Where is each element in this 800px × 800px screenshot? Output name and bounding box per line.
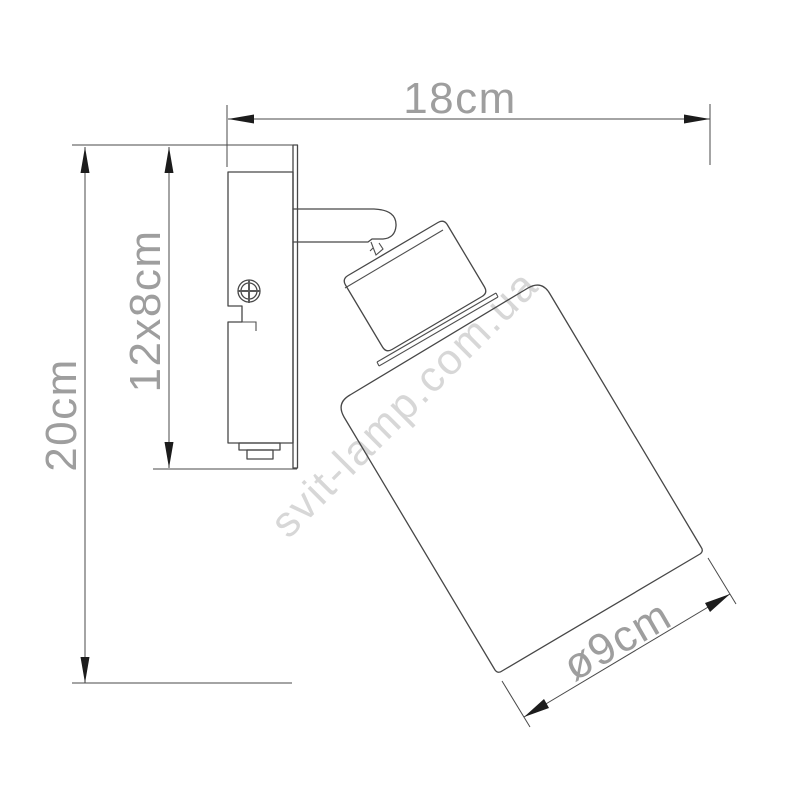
backplate-arrow-top — [165, 147, 174, 173]
backplate-dimension-label: 12x8cm — [121, 229, 170, 392]
height-extension-lines — [72, 145, 297, 683]
height-dimension-label: 20cm — [37, 358, 86, 472]
watermark-text: svit-lamp.com.ua — [262, 261, 548, 547]
joint-clip — [370, 242, 383, 255]
diameter-dimension: ø9cm — [502, 558, 736, 727]
wall-plate-edge — [293, 145, 298, 468]
switch-tab-lower — [247, 450, 273, 459]
diameter-dimension-label: ø9cm — [555, 590, 680, 690]
backplate-dimension: 12x8cm — [121, 147, 297, 469]
height-arrow-bottom — [81, 657, 90, 683]
height-dimension: 20cm — [37, 145, 297, 683]
width-arrow-left — [228, 115, 254, 124]
diameter-arrow-right — [705, 594, 730, 612]
diameter-arrow-left — [524, 699, 549, 717]
backplate-arrow-bottom — [165, 442, 174, 468]
technical-drawing-canvas: svit-lamp.com.ua — [0, 0, 800, 800]
screw-icon — [238, 280, 260, 303]
lamp-line-drawing — [228, 145, 702, 672]
width-arrow-right — [684, 115, 710, 124]
backplate-housing — [228, 172, 293, 443]
switch-tab-upper — [239, 443, 280, 450]
backplate-step-line — [242, 322, 256, 331]
width-dimension: 18cm — [227, 74, 710, 167]
width-dimension-label: 18cm — [403, 74, 517, 123]
support-arm — [293, 209, 396, 242]
socket-holder-face-line — [345, 230, 443, 288]
height-arrow-top — [81, 147, 90, 173]
lamp-dimension-diagram: svit-lamp.com.ua — [0, 0, 800, 800]
